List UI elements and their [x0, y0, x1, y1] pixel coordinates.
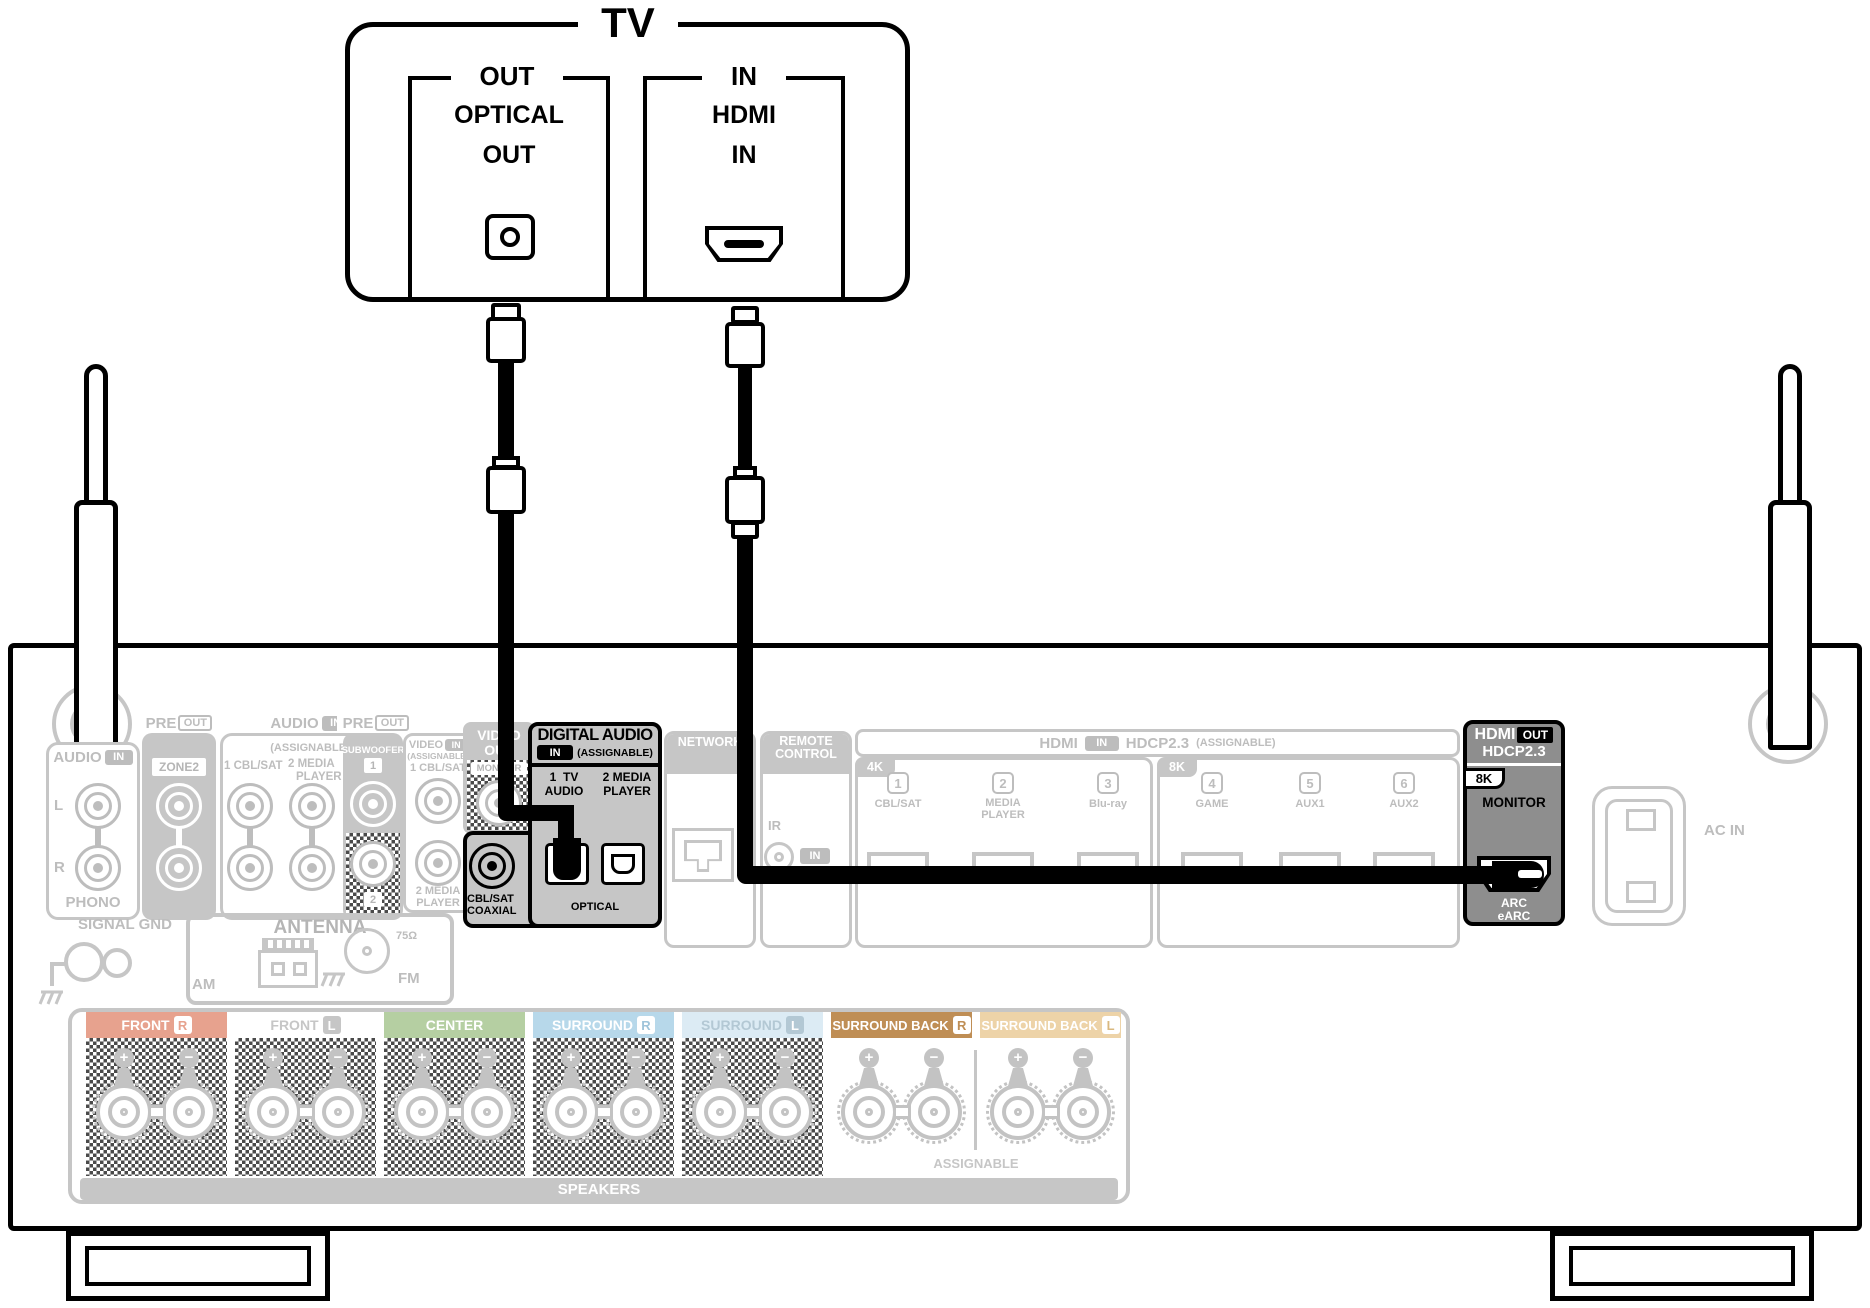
phono-jack-link — [95, 827, 101, 847]
phono-in-chip: IN — [105, 750, 133, 765]
binding-post — [906, 1084, 962, 1140]
hdmi-out-label: HDMI — [1475, 726, 1516, 744]
plus-badge: + — [412, 1048, 432, 1068]
phono-label: AUDIO — [53, 749, 101, 766]
digital-coax-label-a: CBL/SAT — [467, 893, 514, 905]
phono-r-jack — [75, 845, 121, 891]
binding-post — [459, 1084, 515, 1140]
receiver-foot-left — [66, 1231, 330, 1301]
receiver-foot-right — [1550, 1231, 1814, 1301]
optical-cable — [498, 360, 514, 460]
minus-badge: − — [924, 1048, 944, 1068]
tv-optical-label2: OUT — [408, 140, 610, 170]
hdmi-port3-num: 3 — [1097, 772, 1119, 794]
phono-caption: PHONO — [46, 894, 140, 911]
speaker-name: FRONT — [270, 1017, 318, 1033]
speaker-col-front-l: FRONT L + − — [235, 1012, 376, 1176]
antenna-fm-label: FM — [398, 970, 420, 987]
binding-post — [1055, 1084, 1111, 1140]
hdmi-port2-name: MEDIA PLAYER — [968, 798, 1038, 821]
speaker-head: FRONT L — [235, 1012, 376, 1038]
speaker-side-chip: L — [1102, 1016, 1120, 1034]
digital-audio-title: DIGITAL AUDIO — [530, 726, 660, 745]
hdmi-port-slot — [724, 240, 764, 248]
speaker-side-chip: L — [786, 1016, 804, 1034]
tv-optical-header: OUT — [451, 62, 563, 90]
minus-badge: − — [477, 1048, 497, 1068]
speaker-col-surround-l: SURROUND L + − — [682, 1012, 823, 1176]
video-in-jack-1 — [415, 778, 461, 824]
digital-audio-in-chip: IN — [537, 745, 573, 760]
zone2-jack-1 — [156, 783, 202, 829]
audio-assign-jack-2a — [289, 783, 335, 829]
binding-post — [757, 1084, 813, 1140]
zone2-out-chip: OUT — [178, 715, 212, 731]
minus-badge: − — [179, 1048, 199, 1068]
hdmi-port2-num: 2 — [992, 772, 1014, 794]
binding-post — [990, 1084, 1046, 1140]
subwoofer-badge: PRE OUT — [337, 714, 415, 732]
audio-assign-jack-2b — [289, 845, 335, 891]
signal-gnd-wire-h — [50, 962, 68, 966]
phono-l-jack — [75, 783, 121, 829]
hdmi-in-label: HDMI — [1039, 735, 1077, 752]
zone2-name: ZONE2 — [152, 758, 206, 776]
remote-label-1: REMOTE — [760, 734, 852, 748]
plus-badge: + — [114, 1048, 134, 1068]
optical-port-icon — [485, 214, 535, 260]
hdmi-cable-joint-tip — [731, 521, 759, 539]
antenna-rod-left — [84, 364, 108, 506]
minus-badge: − — [1073, 1048, 1093, 1068]
hdmi-out-earc: eARC — [1463, 909, 1565, 923]
minus-badge: − — [626, 1048, 646, 1068]
subwoofer-2-chip: 2 — [364, 892, 382, 907]
tv-hdmi-label2: IN — [643, 140, 845, 170]
speaker-side-chip: R — [174, 1016, 192, 1034]
speaker-side-chip: L — [323, 1016, 341, 1034]
audio-assign-link-1 — [247, 827, 253, 847]
hdmi-out-arc: ARC — [1463, 896, 1565, 910]
binding-post — [245, 1084, 301, 1140]
hdmi-out-name: MONITOR — [1463, 795, 1565, 810]
zone2-jack-link — [176, 827, 182, 847]
plus-badge: + — [710, 1048, 730, 1068]
am-ground-symbol-icon — [320, 966, 348, 990]
hdmi-out-hdcp: HDCP2.3 — [1463, 743, 1565, 760]
hdmi-cable-plug-body — [725, 322, 765, 368]
hdmi-cable — [737, 536, 753, 876]
optical-port-lens — [500, 227, 520, 247]
speakers-assignable-label: ASSIGNABLE — [906, 1156, 1046, 1171]
fm-jack-icon — [344, 928, 390, 974]
binding-post — [394, 1084, 450, 1140]
speaker-col-center: CENTER + − — [384, 1012, 525, 1176]
hdmi-out-divider — [1467, 763, 1561, 766]
antenna-rod-right — [1778, 364, 1802, 506]
surround-back-divider — [974, 1050, 977, 1150]
digital-audio-sub: (ASSIGNABLE) — [577, 747, 653, 759]
hdmi-port6-name: AUX2 — [1359, 798, 1449, 810]
phono-l-label: L — [54, 797, 63, 814]
hdmi-port4-name: GAME — [1167, 798, 1257, 810]
post-link — [893, 1105, 911, 1119]
binding-post — [841, 1084, 897, 1140]
tv-title: TV — [578, 0, 678, 46]
subwoofer-1-chip: 1 — [364, 758, 382, 773]
am-terminal-body — [258, 950, 318, 988]
speaker-col-surround-r: SURROUND R + − — [533, 1012, 674, 1176]
speakers-caption-bar: SPEAKERS — [80, 1178, 1118, 1200]
speaker-head: SURROUND L — [682, 1012, 823, 1038]
remote-ir-label: IR — [768, 818, 781, 833]
speaker-col-surround-back-r: SURROUND BACK R + − — [831, 1012, 972, 1176]
post-link — [595, 1105, 613, 1119]
tv-hdmi-header: IN — [702, 62, 786, 90]
antenna-sleeve-right — [1768, 500, 1812, 750]
zone2-label: PRE — [146, 715, 177, 732]
hdmi-cable-joint-body — [725, 476, 765, 524]
digital-port1-label-b: AUDIO — [536, 784, 592, 798]
antenna-ohm-label: 75Ω — [396, 930, 417, 942]
binding-post — [543, 1084, 599, 1140]
speaker-head: SURROUND BACK L — [980, 1012, 1121, 1038]
audio-assign-label: AUDIO — [270, 715, 318, 732]
hdmi-in-sub: (ASSIGNABLE) — [1196, 737, 1275, 749]
subwoofer-jack-1 — [350, 781, 396, 827]
optical-cable — [498, 511, 514, 807]
post-link — [1042, 1105, 1060, 1119]
binding-post — [608, 1084, 664, 1140]
remote-label-2: CONTROL — [760, 747, 852, 761]
hdmi-cable-run — [737, 866, 1497, 884]
hdmi-port4-num: 4 — [1201, 772, 1223, 794]
speakers-caption: SPEAKERS — [558, 1181, 641, 1198]
subwoofer-jack-2 — [350, 841, 396, 887]
hdmi-plug-slot — [1518, 870, 1542, 878]
tv-hdmi-label1: HDMI — [643, 100, 845, 130]
hdmi-8k-tab: 8K — [1157, 757, 1197, 777]
post-link — [744, 1105, 762, 1119]
speaker-head: SURROUND BACK R — [831, 1012, 972, 1038]
antenna-am-label: AM — [192, 976, 215, 993]
hdmi-in-header-text: HDMI IN HDCP2.3 (ASSIGNABLE) — [855, 729, 1460, 757]
remote-control-box — [760, 731, 852, 948]
plus-badge: + — [859, 1048, 879, 1068]
digital-optical-port-2 — [601, 843, 645, 885]
optical-cable-plug-body — [486, 317, 526, 363]
video-in-jack-2 — [415, 840, 461, 886]
ground-symbol-icon — [38, 984, 66, 1008]
speaker-name: SURROUND BACK — [981, 1018, 1097, 1033]
binding-post — [310, 1084, 366, 1140]
diagram-canvas: TV OUT OPTICAL OUT IN HDMI IN AUDIO IN L… — [0, 0, 1870, 1308]
digital-optical-caption: OPTICAL — [543, 901, 647, 913]
digital-port1-label-a: 1 TV — [536, 770, 592, 784]
post-link — [297, 1105, 315, 1119]
hdmi-port5-num: 5 — [1299, 772, 1321, 794]
binding-post — [96, 1084, 152, 1140]
remote-in-chip: IN — [800, 848, 830, 864]
digital-coax-label-b: COAXIAL — [467, 905, 517, 917]
ethernet-port-icon — [672, 828, 734, 882]
speaker-head: SURROUND R — [533, 1012, 674, 1038]
speaker-name: CENTER — [426, 1017, 484, 1033]
ac-in-label: AC IN — [1704, 822, 1745, 839]
hdmi-port1-num: 1 — [887, 772, 909, 794]
hdmi-cable — [738, 366, 752, 468]
ac-inlet-icon — [1592, 786, 1686, 926]
subwoofer-name: SUBWOOFER — [343, 745, 403, 756]
digital-audio-badge: IN (ASSIGNABLE) — [530, 744, 660, 761]
hdmi-out-chip: OUT — [1517, 727, 1553, 743]
hdmi-port1-name: CBL/SAT — [853, 798, 943, 810]
speaker-col-front-r: FRONT R + − — [86, 1012, 227, 1176]
signal-gnd-label: SIGNAL GND — [60, 916, 190, 933]
antenna-sleeve-left — [74, 500, 118, 750]
phono-r-label: R — [54, 859, 65, 876]
binding-post — [161, 1084, 217, 1140]
optical-cable-joint-body — [486, 466, 526, 514]
digital-coax-jack — [469, 843, 515, 889]
hdmi-port-icon — [705, 226, 783, 262]
audio-assign-link-2 — [309, 827, 315, 847]
speaker-name: SURROUND BACK — [832, 1018, 948, 1033]
audio-assign-col2b: PLAYER — [296, 771, 342, 783]
audio-assign-jack-1b — [227, 845, 273, 891]
subwoofer-pre-label: PRE — [343, 715, 374, 732]
optical-plug-in-port — [553, 838, 581, 880]
hdmi-port3-name: Blu-ray — [1063, 798, 1153, 810]
hdmi-port5-name: AUX1 — [1265, 798, 1355, 810]
speaker-col-surround-back-l: SURROUND BACK L + − — [980, 1012, 1121, 1176]
speaker-head: FRONT R — [86, 1012, 227, 1038]
phono-badge: AUDIO IN — [46, 748, 140, 766]
digital-port2-label-a: 2 MEDIA — [598, 770, 656, 784]
speaker-head: CENTER — [384, 1012, 525, 1038]
speaker-name: SURROUND — [552, 1017, 633, 1033]
am-terminal-icon — [262, 938, 314, 950]
minus-badge: − — [775, 1048, 795, 1068]
zone2-jack-2 — [156, 845, 202, 891]
tv-optical-label1: OPTICAL — [408, 100, 610, 130]
hdmi-port6-num: 6 — [1393, 772, 1415, 794]
speaker-side-chip: R — [637, 1016, 655, 1034]
digital-audio-divider — [530, 763, 660, 767]
binding-post — [692, 1084, 748, 1140]
plus-badge: + — [263, 1048, 283, 1068]
speaker-name: SURROUND — [701, 1017, 782, 1033]
plus-badge: + — [1008, 1048, 1028, 1068]
signal-gnd-screw-icon — [64, 942, 104, 982]
hdmi-out-header: HDMI OUT — [1463, 726, 1565, 744]
digital-optical-port-2-slot — [611, 854, 635, 874]
hdmi-in-hdcp: HDCP2.3 — [1126, 735, 1189, 752]
hdmi-in-chip: IN — [1085, 736, 1119, 751]
speaker-side-chip: R — [953, 1016, 971, 1034]
subwoofer-out-chip: OUT — [375, 715, 409, 731]
hdmi-out-8k-tab: 8K — [1463, 768, 1505, 789]
audio-assign-col1: 1 CBL/SAT — [224, 760, 283, 772]
speaker-name: FRONT — [121, 1017, 169, 1033]
audio-assign-jack-1a — [227, 783, 273, 829]
minus-badge: − — [328, 1048, 348, 1068]
post-link — [148, 1105, 166, 1119]
audio-assign-col2a: 2 MEDIA — [288, 758, 335, 770]
hdmi-plug-in-port — [1492, 861, 1544, 888]
post-link — [446, 1105, 464, 1119]
signal-gnd-screw-icon-2 — [102, 948, 132, 978]
digital-port2-label-b: PLAYER — [598, 784, 656, 798]
plus-badge: + — [561, 1048, 581, 1068]
video-in-label: VIDEO — [409, 739, 443, 751]
zone2-badge: PRE OUT — [140, 714, 218, 732]
